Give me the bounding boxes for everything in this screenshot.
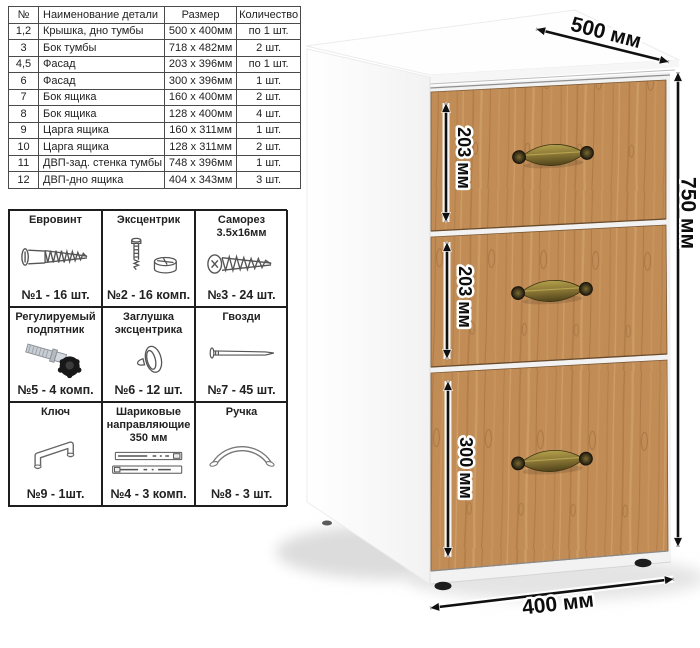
dimension-label-drawer-1: 203 мм	[454, 127, 474, 189]
dimension-label-drawer-3: 300 мм	[456, 437, 476, 499]
assembly-sheet: № Наименование детали Размер Количество …	[0, 0, 700, 648]
dimension-height: 750 мм	[677, 72, 700, 547]
cabinet-body	[306, 10, 679, 590]
dimension-label-drawer-2: 203 мм	[455, 266, 475, 328]
side-panel	[307, 49, 430, 584]
dimension-label-height: 750 мм	[677, 177, 700, 249]
cabinet-illustration: 500 мм 750 мм 400 мм 203 мм 203 мм 300 м…	[0, 0, 700, 648]
